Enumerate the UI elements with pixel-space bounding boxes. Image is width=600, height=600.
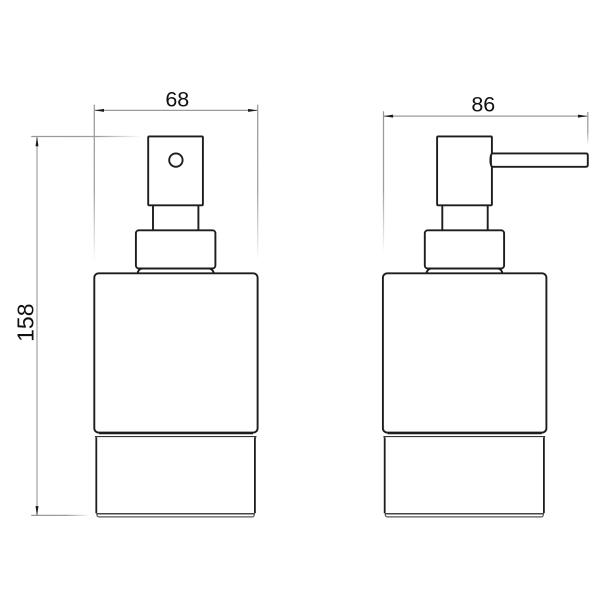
svg-text:68: 68 [165,87,189,111]
svg-text:86: 86 [471,93,495,117]
svg-text:158: 158 [12,304,38,342]
